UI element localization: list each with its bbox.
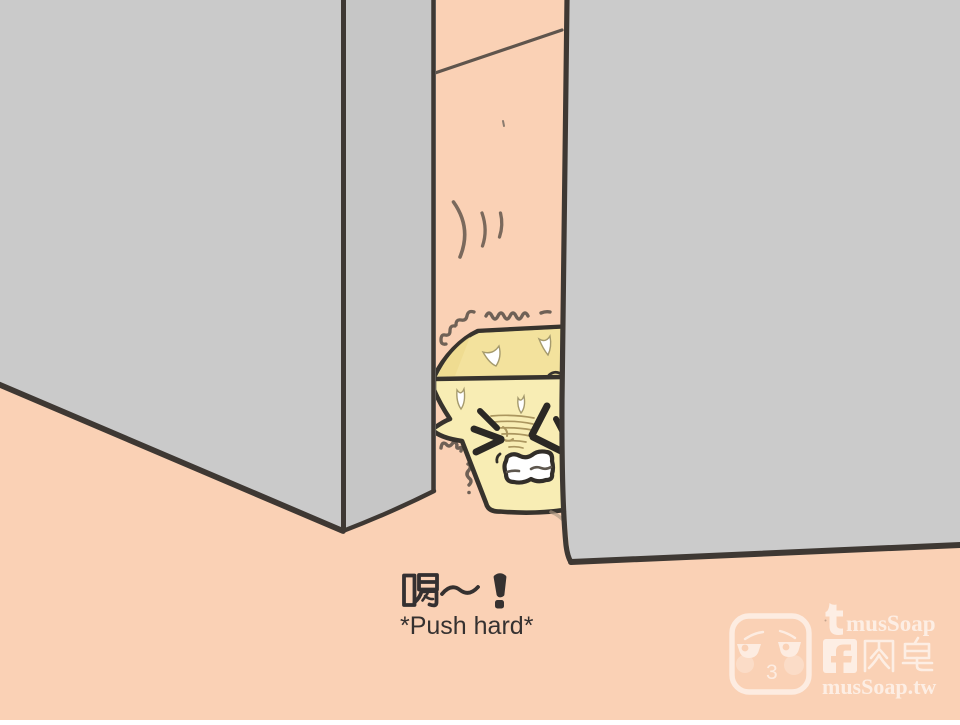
svg-text:*Push hard*: *Push hard*	[400, 612, 534, 640]
svg-text:3: 3	[766, 661, 778, 684]
svg-text:musSoap: musSoap	[846, 611, 935, 636]
svg-text:musSoap.tw: musSoap.tw	[822, 674, 936, 699]
